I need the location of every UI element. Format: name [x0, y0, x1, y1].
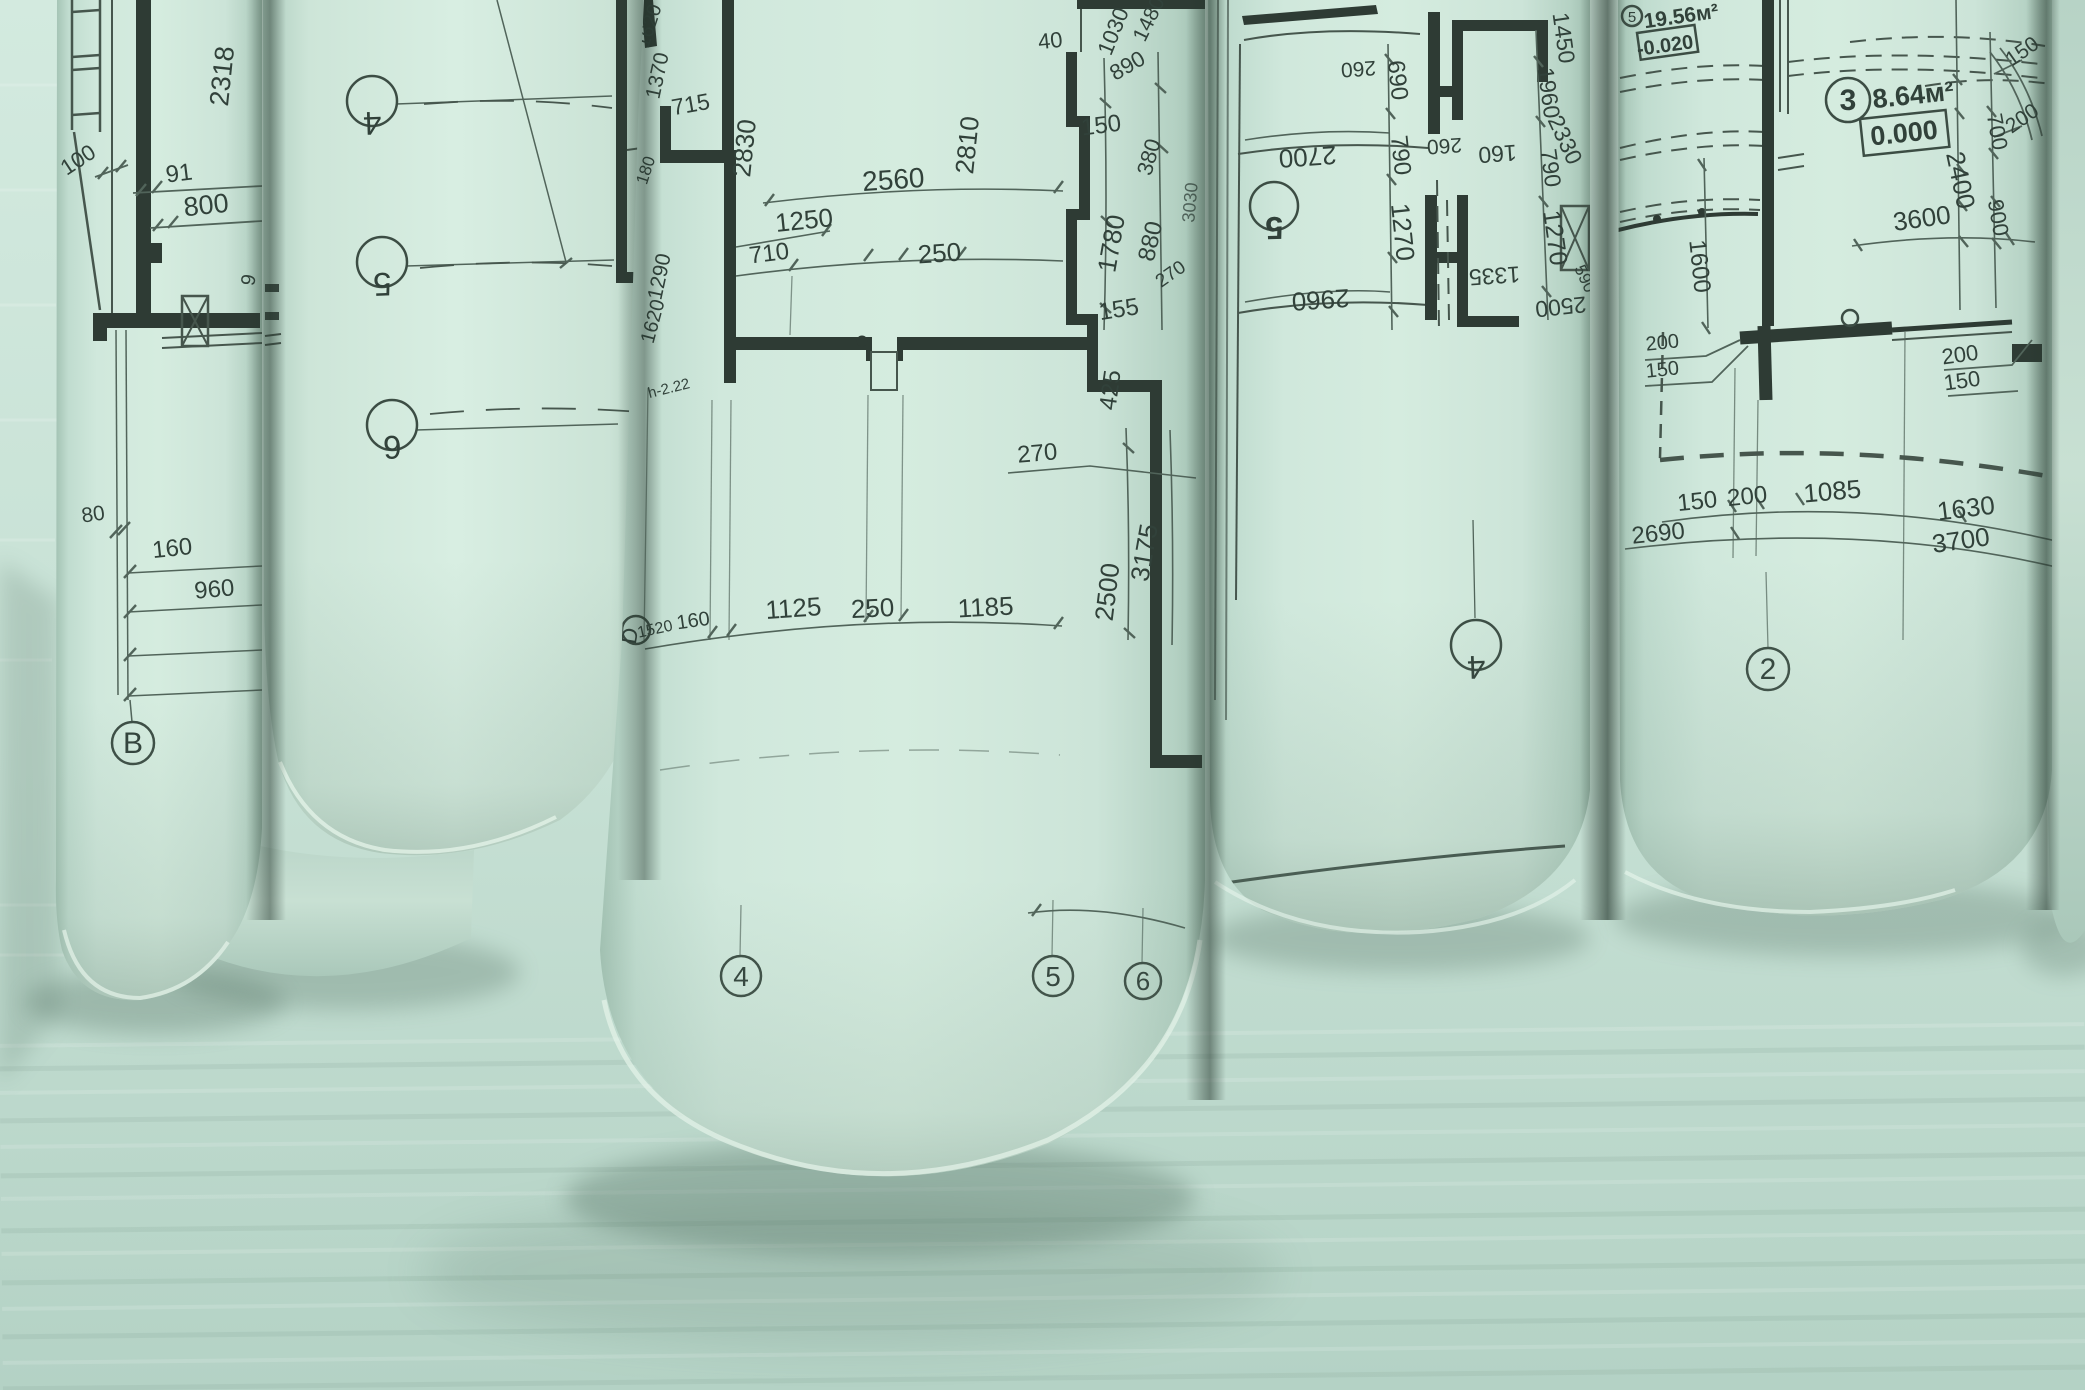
axis-label: 6	[383, 429, 403, 467]
dim-label: 200	[1940, 340, 1980, 370]
dim-label: 1185	[957, 591, 1014, 624]
dim-label: 790	[1385, 134, 1416, 177]
dim-label: 1250	[774, 202, 835, 238]
dim-label: 150	[1676, 486, 1719, 517]
dim-label: 150	[1942, 366, 1982, 396]
seam-shadow-2-3	[618, 0, 662, 880]
dim-label: 91	[164, 159, 194, 189]
dim-label: 160	[1478, 140, 1518, 169]
dim-label: 1085	[1802, 474, 1862, 509]
dim-label: 200	[1645, 330, 1680, 355]
dim-label: 1125	[764, 591, 822, 625]
seam-shadow-1-2	[246, 0, 286, 920]
dim-label: 270	[1016, 438, 1058, 468]
dim-label: 2500	[1534, 291, 1588, 322]
dim-label: 2318	[204, 45, 240, 108]
room5-number: 5	[1628, 9, 1636, 26]
axis-label: 4	[363, 105, 383, 143]
seam-shadow-3-4	[1186, 0, 1226, 1100]
dim-label: 960	[193, 574, 235, 604]
dim-label: 2810	[949, 115, 985, 176]
dim-label: 1600	[1683, 238, 1715, 294]
dim-label: 260	[1426, 133, 1463, 158]
dim-label: 160	[151, 533, 194, 564]
blueprint-scene: 5 19.56м² -0.020 3 8.64м² 0.000 150 200 …	[0, 0, 2085, 1390]
dim-label: 2830	[726, 118, 762, 179]
dim-label: 40	[1037, 27, 1064, 54]
dim-label: 260	[1340, 56, 1377, 81]
roll-3: 1620 1370 715 180 2830 2560 2810 1250 71…	[585, 0, 1210, 1210]
dim-label: 2960	[1291, 283, 1351, 317]
room3-number: 3	[1840, 84, 1857, 117]
dim-label: 425	[1094, 368, 1126, 411]
dim-label: 800	[182, 188, 230, 223]
dim-label: 2700	[1278, 140, 1338, 174]
dim-label: 1335	[1468, 261, 1521, 291]
dim-label: 690	[1382, 59, 1413, 102]
dim-label: 150	[1080, 110, 1123, 142]
dim-label: 150	[1645, 357, 1680, 382]
dim-label: 710	[748, 238, 791, 270]
roll-4: 2700 2960 260 690 790 260 1270 1450 1960…	[1200, 0, 1600, 940]
roll-2: 4 5 6	[260, 0, 660, 880]
seam-shadow-4-5	[1580, 0, 1626, 920]
dim-label: 200	[1726, 481, 1769, 512]
blueprint-photo: 5 19.56м² -0.020 3 8.64м² 0.000 150 200 …	[0, 0, 2085, 1390]
dim-label: 2560	[861, 162, 925, 197]
dim-label: 250	[850, 592, 895, 624]
room-number: 5	[1265, 210, 1284, 247]
dim-label: 2690	[1630, 517, 1686, 549]
dim-label: 790	[1535, 147, 1566, 189]
dim-label: 80	[80, 502, 106, 528]
seam-shadow-5-back	[2026, 0, 2060, 910]
roll-1: 100 91 800 2318 9 80 160 960 B	[50, 0, 270, 1010]
dim-label: 160	[675, 608, 711, 634]
dim-label: 1270	[1385, 202, 1421, 263]
dim-label: 250	[917, 237, 962, 270]
roll-5: 5 19.56м² -0.020 3 8.64м² 0.000 150 200 …	[1600, 0, 2083, 920]
axis-label: 5	[373, 266, 393, 304]
